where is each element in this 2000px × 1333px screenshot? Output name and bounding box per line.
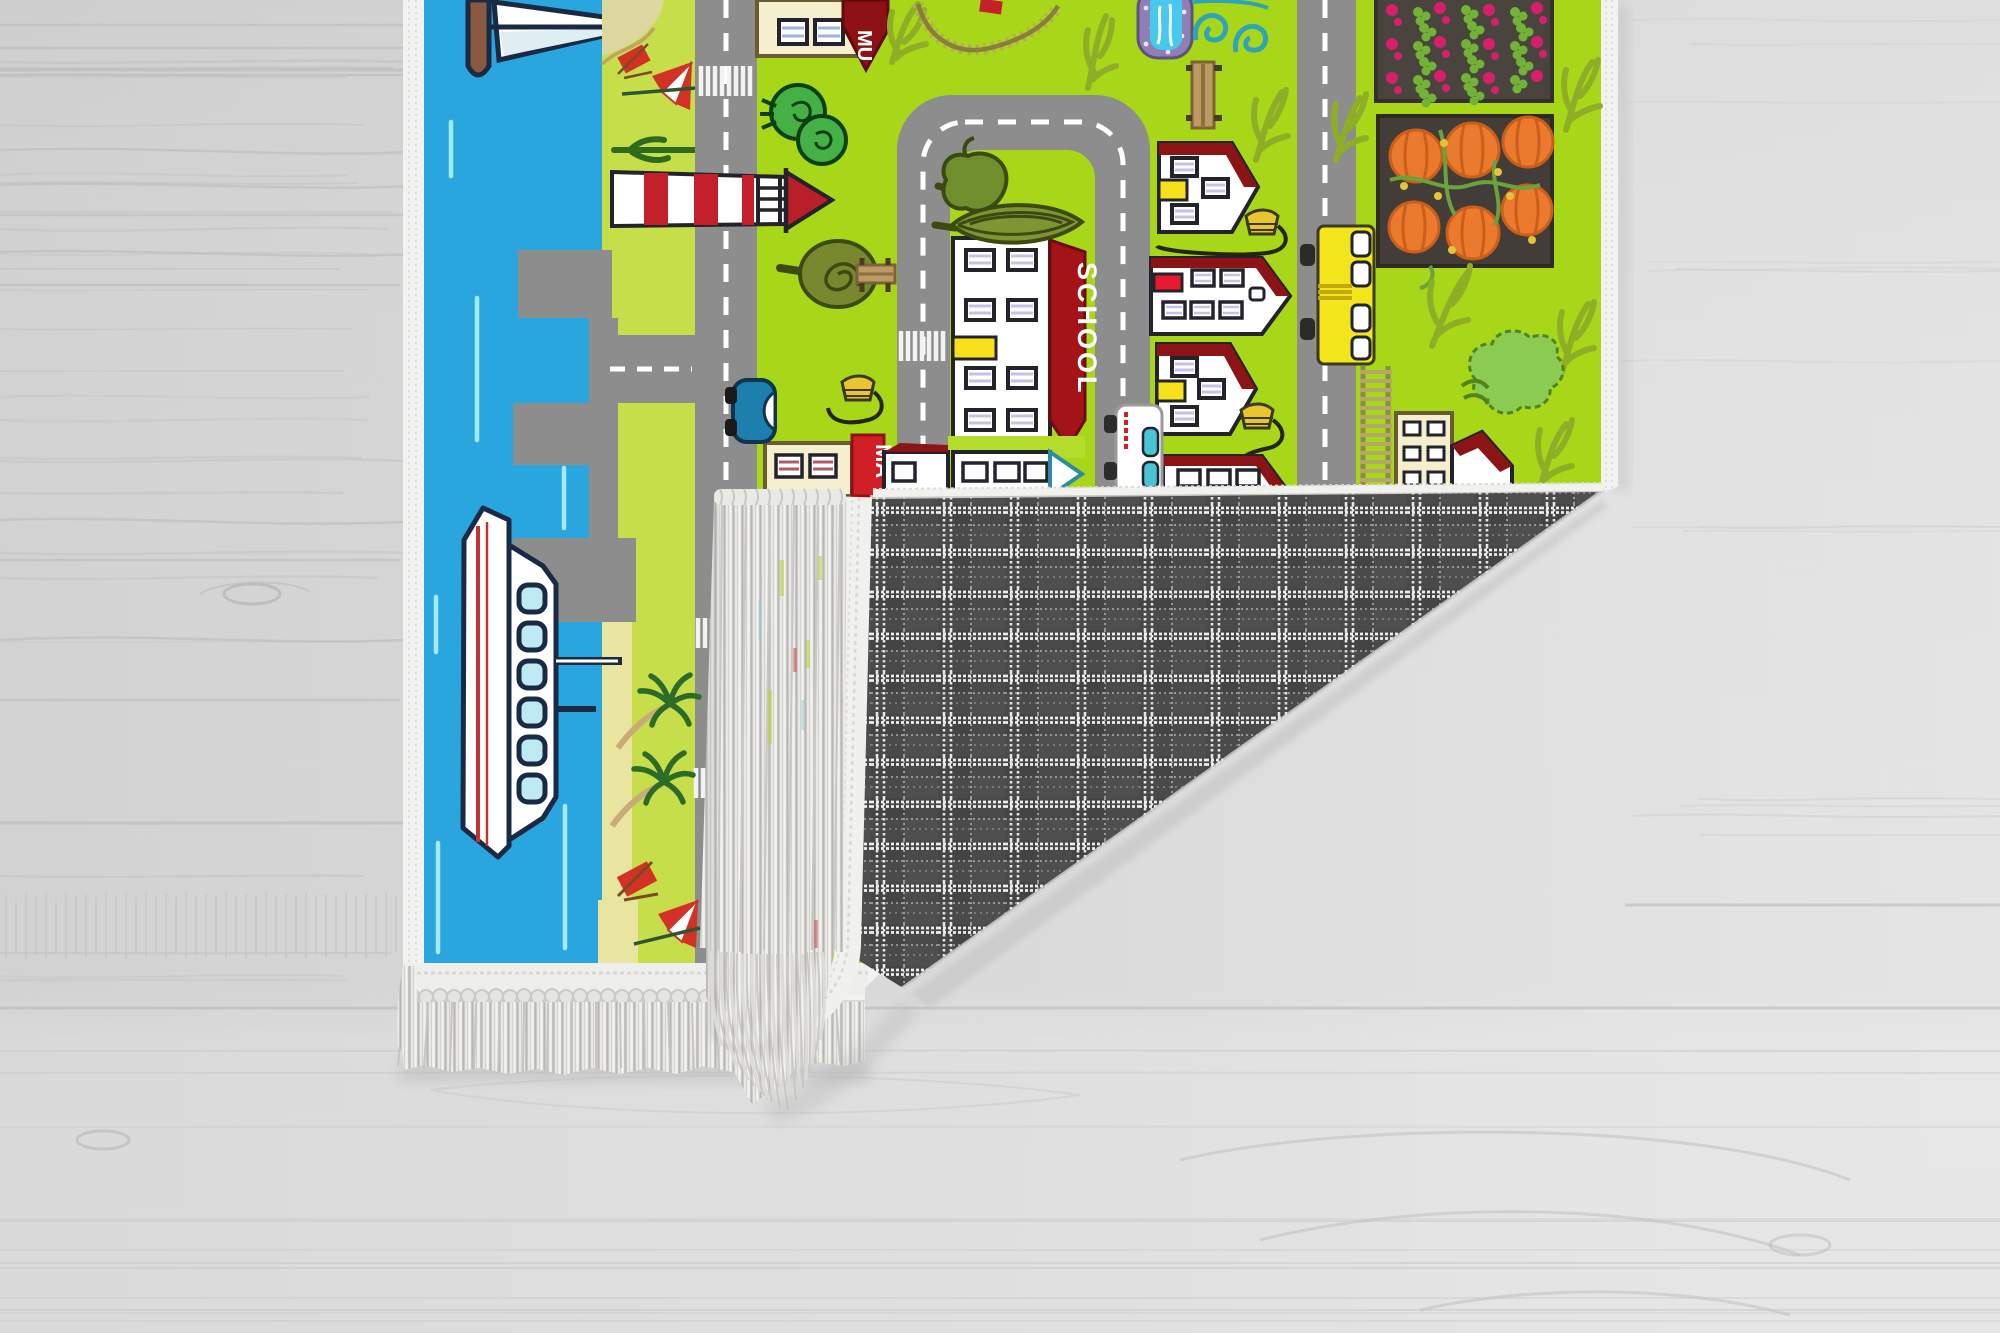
svg-text:SCHOOL: SCHOOL	[1072, 262, 1102, 396]
svg-text:MU: MU	[853, 30, 875, 61]
